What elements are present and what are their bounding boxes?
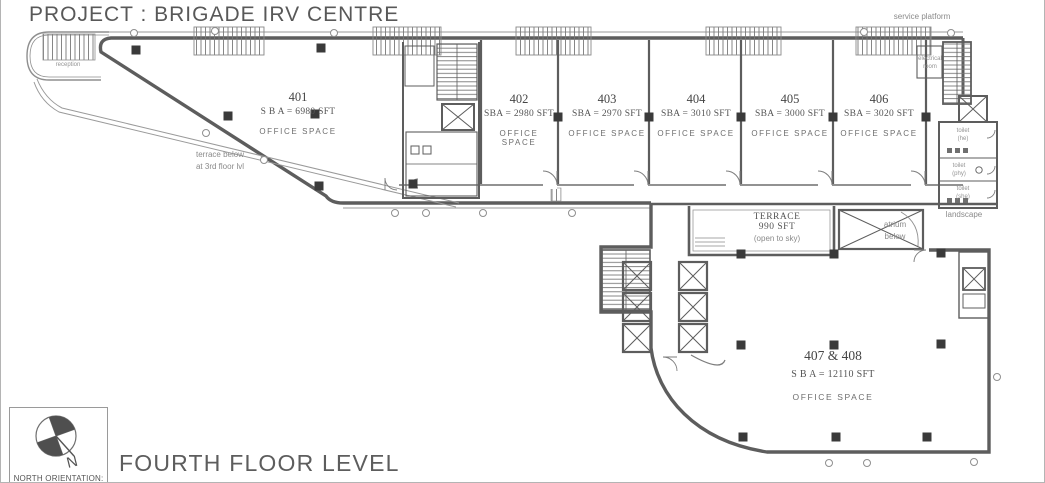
unit-label-401: 401 S B A = 6980 SFT OFFICE SPACE <box>213 90 383 136</box>
unit-number: 407 & 408 <box>733 348 933 364</box>
terrace-area: 990 SFT <box>717 222 837 232</box>
reception-note: reception <box>43 62 93 70</box>
unit-number: 403 <box>567 92 647 107</box>
north-orientation-label: NORTH ORIENTATION: <box>10 474 107 483</box>
project-title: PROJECT : BRIGADE IRV CENTRE <box>29 3 399 27</box>
left-core <box>385 42 479 198</box>
lower-core <box>602 250 725 371</box>
unit-label-404: 404 SBA = 3010 SFT OFFICE SPACE <box>656 92 736 138</box>
terrace-title: TERRACE <box>717 212 837 222</box>
terrace-below-note: terrace below at 3rd floor lvl <box>160 149 280 173</box>
service-platform-note: service platform <box>867 11 977 23</box>
unit-number: 402 <box>481 92 557 107</box>
unit-number: 405 <box>750 92 830 107</box>
toilet-he-note: toilet (he) <box>943 128 983 144</box>
landscape-note: landscape <box>929 209 999 221</box>
north-orientation-box: N NORTH ORIENTATION: <box>9 407 108 483</box>
terrace-note: (open to sky) <box>717 234 837 243</box>
unit-label-405: 405 SBA = 3000 SFT OFFICE SPACE <box>750 92 830 138</box>
corridor-doors <box>543 171 925 189</box>
toilet-she-note: toilet (she) <box>943 186 983 202</box>
terrace-label: TERRACE 990 SFT (open to sky) <box>717 212 837 243</box>
unit-label-406: 406 SBA = 3020 SFT OFFICE SPACE <box>839 92 919 138</box>
electrical-room-note: electrical room <box>910 56 950 72</box>
north-letter: N <box>65 453 80 470</box>
unit-type: OFFICE SPACE <box>733 392 933 402</box>
unit-type: OFFICE SPACE <box>567 129 647 138</box>
staircase-icon <box>43 34 95 60</box>
floor-level-title: FOURTH FLOOR LEVEL <box>119 450 400 477</box>
unit-type: OFFICE SPACE <box>481 129 557 147</box>
unit-area: SBA = 3000 SFT <box>750 109 830 119</box>
compass-icon: N <box>10 408 105 470</box>
unit-number: 406 <box>839 92 919 107</box>
unit-number: 404 <box>656 92 736 107</box>
unit-area: SBA = 3020 SFT <box>839 109 919 119</box>
toilet-phy-note: toilet (phy) <box>939 163 979 179</box>
unit-label-402: 402 SBA = 2980 SFT OFFICE SPACE <box>481 92 557 147</box>
unit-type: OFFICE SPACE <box>213 127 383 136</box>
unit-area: SBA = 3010 SFT <box>656 109 736 119</box>
unit-area: SBA = 2970 SFT <box>567 109 647 119</box>
service-louvers <box>194 27 931 55</box>
unit-area: S B A = 12110 SFT <box>733 369 933 380</box>
unit-label-403: 403 SBA = 2970 SFT OFFICE SPACE <box>567 92 647 138</box>
unit-type: OFFICE SPACE <box>656 129 736 138</box>
unit-type: OFFICE SPACE <box>750 129 830 138</box>
atrium-below-note: atrium below <box>860 219 930 243</box>
unit-type: OFFICE SPACE <box>839 129 919 138</box>
unit-label-407-408: 407 & 408 S B A = 12110 SFT OFFICE SPACE <box>733 348 933 402</box>
floor-plan-page: PROJECT : BRIGADE IRV CENTRE FOURTH FLOO… <box>0 0 1045 483</box>
unit-area: SBA = 2980 SFT <box>481 109 557 119</box>
right-service-shaft <box>959 252 989 318</box>
reception-bay <box>27 32 109 80</box>
unit-number: 401 <box>213 90 383 105</box>
unit-area: S B A = 6980 SFT <box>213 107 383 117</box>
